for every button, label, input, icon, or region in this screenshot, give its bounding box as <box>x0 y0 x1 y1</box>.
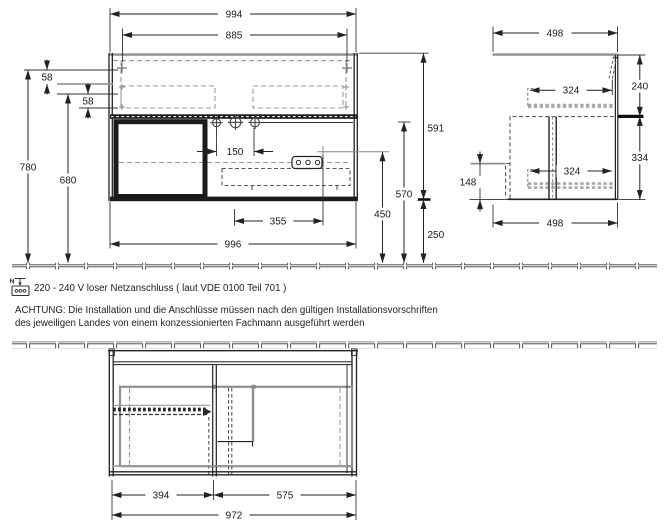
inner-shelf-outline <box>222 169 350 186</box>
countertop-underside-outline <box>120 387 352 466</box>
dim-label: 591 <box>428 123 445 134</box>
drawing-canvas: 994 885 58 58 <box>0 0 667 530</box>
dim-label: 885 <box>226 31 243 42</box>
warning-note-line1: ACHTUNG: Die Installation und die Anschl… <box>15 305 438 316</box>
power-socket-symbol <box>292 146 389 168</box>
dim-front-drain-height: 450 <box>369 152 397 263</box>
wall-hatch-line <box>12 342 657 349</box>
side-view: 498 324 240 334 <box>455 27 653 230</box>
dim-label: 498 <box>547 29 564 40</box>
dim-front-hanger-offset-top: 58 <box>24 60 118 95</box>
water-pipe <box>218 388 254 447</box>
dim-label: 58 <box>82 97 94 108</box>
dim-front-width-cabinet: 996 <box>110 202 356 251</box>
drawer-box <box>116 122 205 197</box>
dim-label: 450 <box>374 209 391 220</box>
hanger-cross-left <box>117 63 127 73</box>
dim-front-height-total: 780 <box>15 70 42 263</box>
drawer-runner <box>112 405 212 416</box>
dim-plan-total-width: 972 <box>112 509 356 522</box>
bottom-panel <box>110 197 358 202</box>
plan-cabinet <box>108 349 358 477</box>
dim-label: 972 <box>226 511 243 522</box>
dim-label: 148 <box>460 177 477 188</box>
dim-label: 994 <box>226 10 243 21</box>
power-note: 220 - 240 V loser Netzanschluss ( laut V… <box>34 283 286 294</box>
dim-label: 240 <box>631 82 648 93</box>
dim-label: 780 <box>20 162 37 173</box>
runner-arrow <box>203 408 212 417</box>
dim-front-width-hanger: 885 <box>123 29 348 63</box>
floor-hatch-line <box>12 263 657 270</box>
dim-side-cutout-top: 324 <box>530 80 612 97</box>
dim-front-height-basin: 680 <box>55 94 82 263</box>
dim-plan-open-width: 575 <box>214 489 357 502</box>
dim-front-rail-height: 570 <box>390 122 418 263</box>
dim-label: 996 <box>225 240 242 251</box>
plan-dimensions: 394 575 972 <box>112 480 356 522</box>
dim-plan-drawer-width: 394 <box>112 489 214 502</box>
notes: 220 - 240 V loser Netzanschluss ( laut V… <box>11 279 438 329</box>
dim-label: 575 <box>277 491 294 502</box>
dim-label: 334 <box>631 153 648 164</box>
dim-side-drain-height: 148 <box>455 152 481 212</box>
front-dimensions: 994 885 58 58 <box>15 8 450 263</box>
mounting-rail <box>110 114 358 119</box>
plan-view: 394 575 972 <box>12 342 657 522</box>
dim-side-depth-bottom: 498 <box>493 203 618 230</box>
dim-front-hole-spacing: 150 <box>197 128 273 158</box>
front-view: 994 885 58 58 <box>15 8 450 263</box>
dim-label: 324 <box>564 166 581 177</box>
warning-note-line2: des jeweiligen Landes von einem konzessi… <box>15 318 365 329</box>
dim-label: 150 <box>227 147 244 158</box>
dim-label: 570 <box>396 189 413 200</box>
dim-label: 394 <box>153 491 170 502</box>
dim-side-apron-height: 240 <box>627 55 654 116</box>
dim-front-floor-clearance: 250 <box>424 200 450 264</box>
dim-label: 680 <box>60 175 77 186</box>
side-body-hidden-outline <box>510 117 614 199</box>
dim-side-cutout-bottom: 324 <box>530 165 612 178</box>
drain-pipe <box>549 117 556 200</box>
dim-side-depth-top: 498 <box>493 27 618 53</box>
dim-label: 324 <box>563 86 580 97</box>
power-connection-icon <box>11 279 30 296</box>
dim-side-body-height: 334 <box>627 116 654 199</box>
hanger-cross-right <box>342 63 352 73</box>
technical-drawing-page: 994 885 58 58 <box>0 0 667 530</box>
dim-label: 355 <box>270 217 287 228</box>
dim-label: 498 <box>547 219 564 230</box>
dim-label: 250 <box>428 230 445 241</box>
side-cabinet <box>470 55 646 200</box>
dim-label: 58 <box>41 73 53 84</box>
